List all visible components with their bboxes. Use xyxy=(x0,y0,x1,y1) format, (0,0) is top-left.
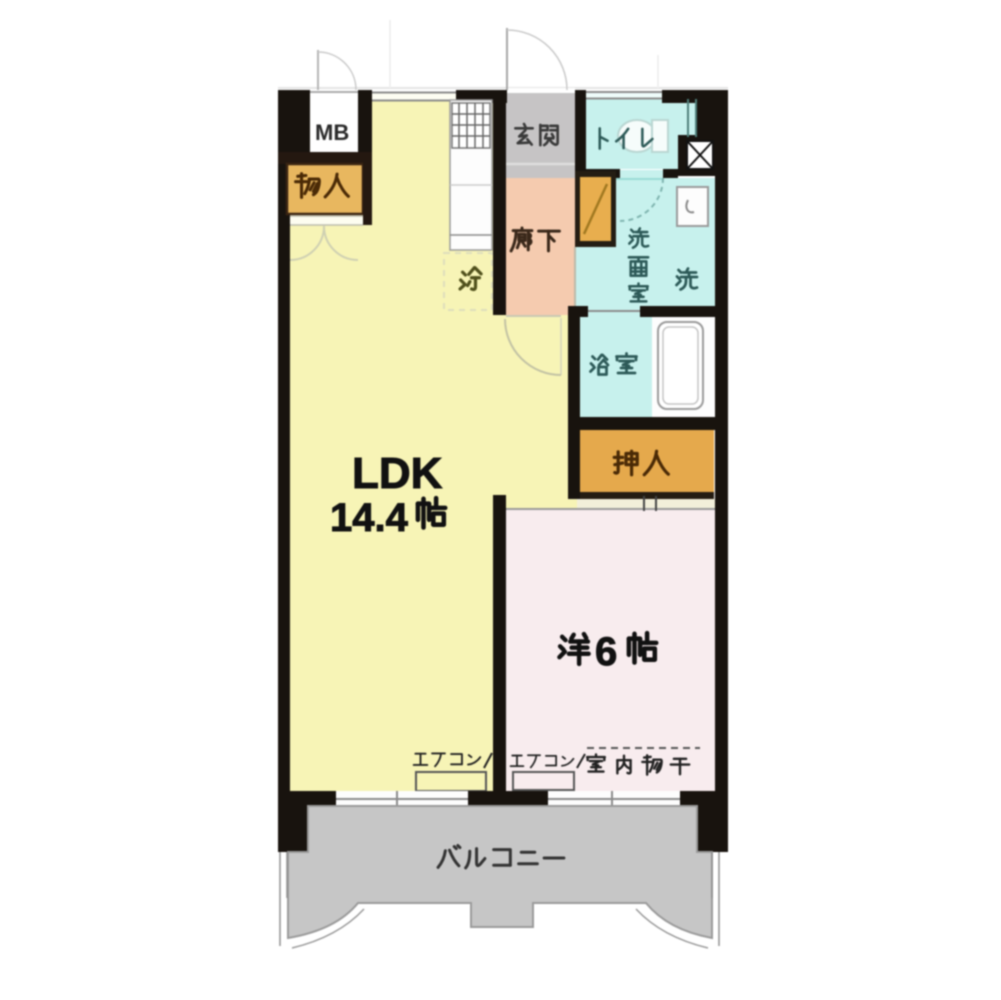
svg-text:MB: MB xyxy=(315,120,349,145)
svg-text:14.4: 14.4 xyxy=(330,496,409,540)
svg-text:LDK: LDK xyxy=(352,449,443,498)
svg-text:6: 6 xyxy=(595,630,617,674)
